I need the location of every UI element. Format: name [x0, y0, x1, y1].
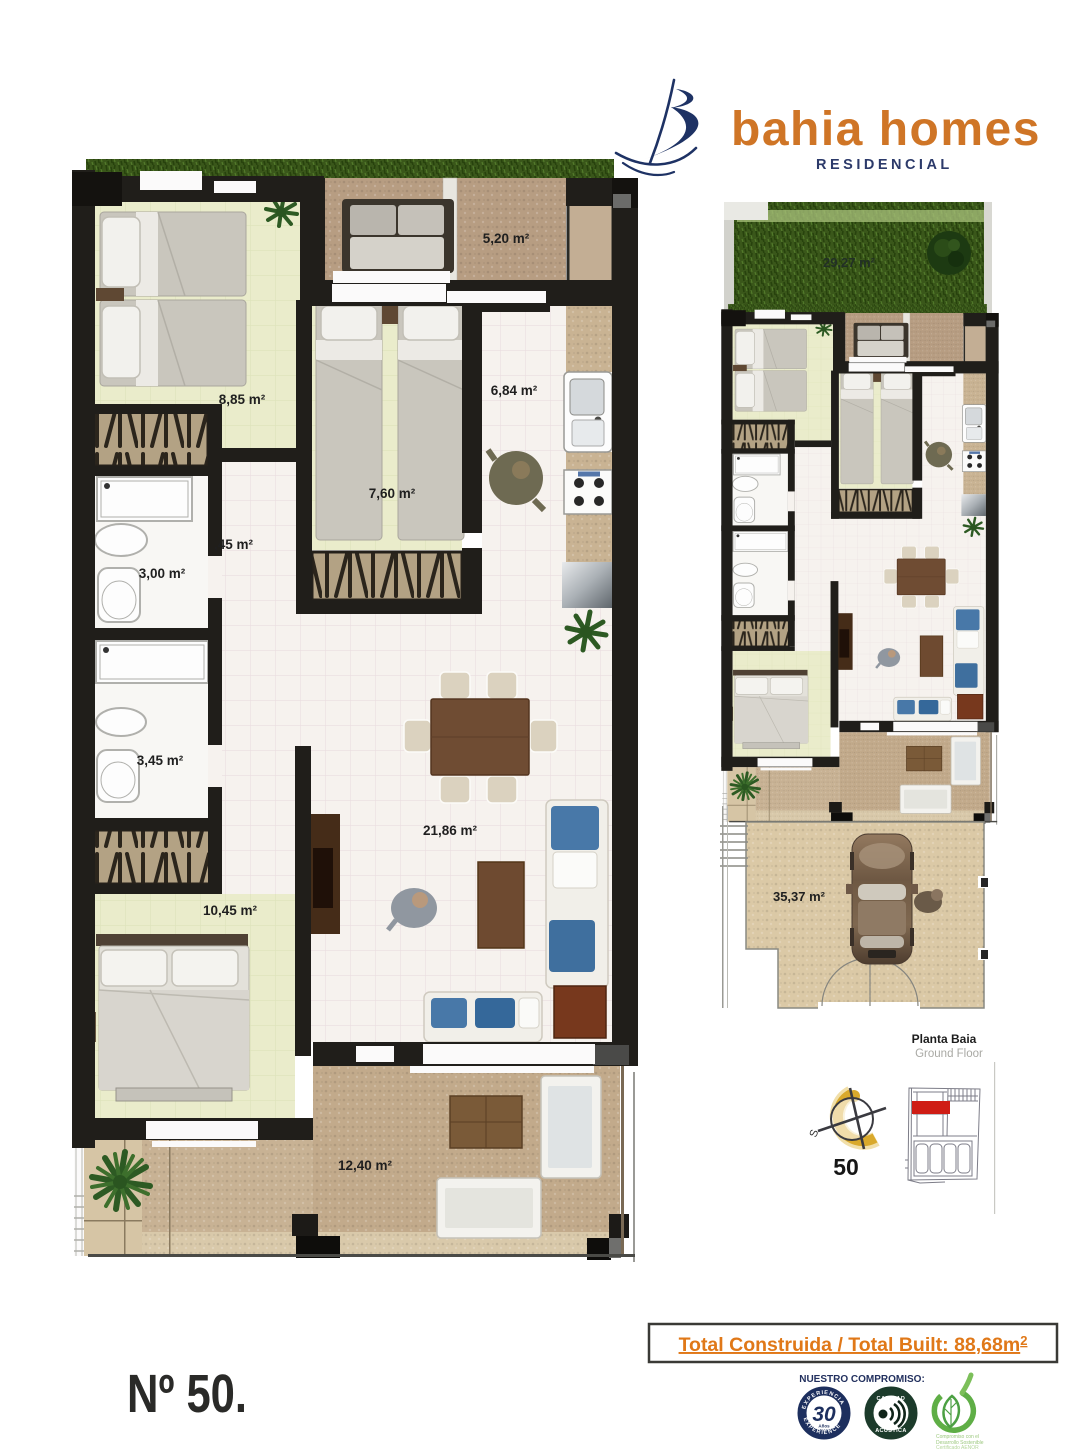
svg-text:10,45 m²: 10,45 m² — [203, 903, 258, 918]
svg-text:35,37 m²: 35,37 m² — [773, 889, 826, 904]
svg-text:3,00 m²: 3,00 m² — [139, 566, 186, 581]
svg-text:7,60 m²: 7,60 m² — [369, 486, 416, 501]
svg-text:Planta Baia: Planta Baia — [912, 1032, 977, 1046]
svg-text:8,85 m²: 8,85 m² — [219, 392, 266, 407]
svg-text:Nº 50.: Nº 50. — [127, 1364, 247, 1424]
svg-text:6,84 m²: 6,84 m² — [491, 383, 538, 398]
svg-text:,45 m²: ,45 m² — [214, 537, 254, 552]
svg-text:50: 50 — [833, 1154, 859, 1180]
svg-text:bahia homes: bahia homes — [731, 103, 1041, 156]
svg-text:21,86 m²: 21,86 m² — [423, 823, 478, 838]
svg-text:3,45 m²: 3,45 m² — [137, 753, 184, 768]
svg-text:NUESTRO COMPROMISO:: NUESTRO COMPROMISO: — [799, 1374, 925, 1385]
svg-text:5,20 m²: 5,20 m² — [483, 231, 530, 246]
svg-text:CALIDAD: CALIDAD — [877, 1396, 906, 1402]
svg-text:Certificado AENOR: Certificado AENOR — [936, 1445, 979, 1449]
svg-text:29,27 m²: 29,27 m² — [823, 255, 876, 270]
svg-text:RESIDENCIAL: RESIDENCIAL — [816, 157, 953, 173]
svg-text:12,40 m²: 12,40 m² — [338, 1158, 393, 1173]
svg-text:ACUSTICA: ACUSTICA — [875, 1428, 907, 1434]
svg-text:Total Construida / Total Built: Total Construida / Total Built: 88,68m2 — [679, 1333, 1028, 1356]
svg-text:Ground Floor: Ground Floor — [915, 1048, 983, 1060]
